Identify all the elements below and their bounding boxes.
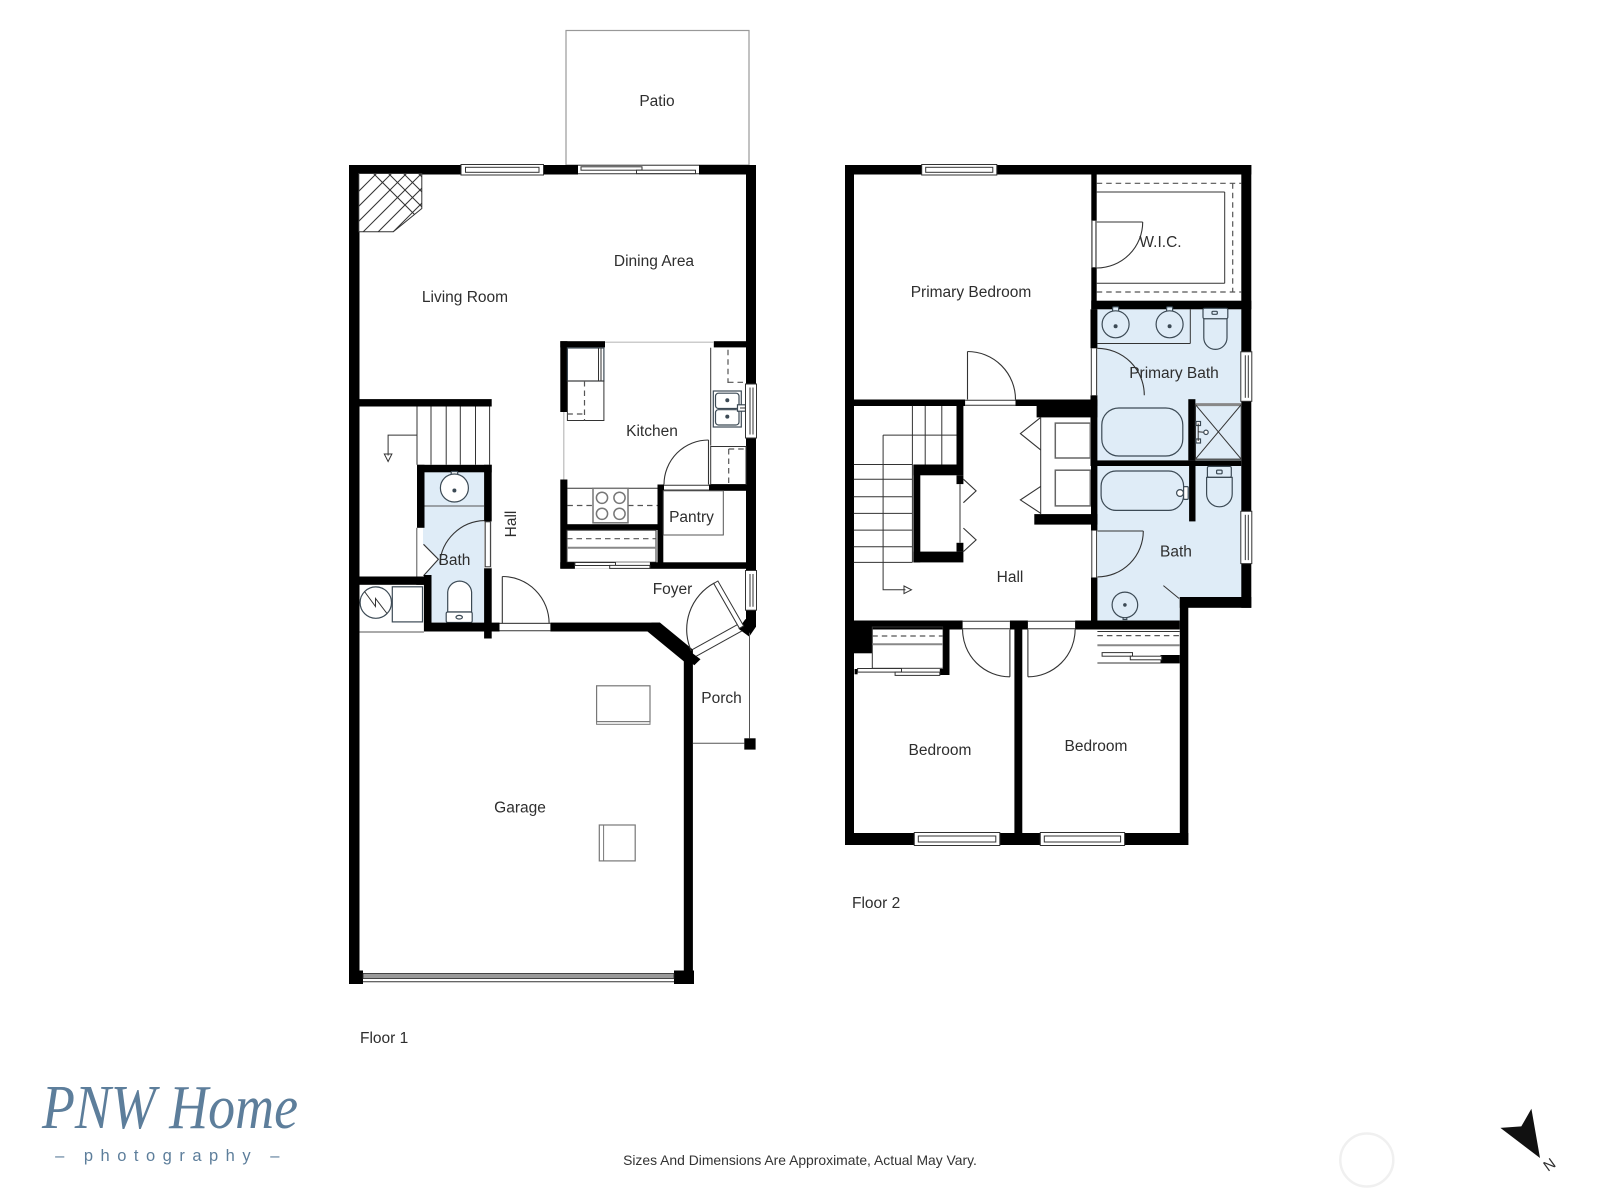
svg-text:Pantry: Pantry: [669, 509, 714, 526]
svg-text:Bath: Bath: [1160, 544, 1192, 561]
svg-text:Patio: Patio: [639, 93, 674, 110]
svg-text:Bedroom: Bedroom: [1065, 738, 1128, 755]
svg-text:Foyer: Foyer: [653, 581, 693, 598]
svg-text:Dining Area: Dining Area: [614, 253, 695, 270]
svg-text:– photography –: – photography –: [55, 1147, 287, 1165]
svg-text:W.I.C.: W.I.C.: [1139, 234, 1181, 251]
svg-text:Floor 1: Floor 1: [360, 1030, 408, 1047]
svg-text:Bedroom: Bedroom: [909, 742, 972, 759]
svg-text:Garage: Garage: [494, 800, 546, 817]
svg-text:Sizes And Dimensions Are Appro: Sizes And Dimensions Are Approximate, Ac…: [623, 1152, 977, 1168]
svg-text:Living Room: Living Room: [422, 289, 508, 306]
svg-text:Hall: Hall: [503, 511, 520, 538]
svg-text:Porch: Porch: [701, 690, 742, 707]
svg-text:Floor 2: Floor 2: [852, 895, 900, 912]
svg-text:Bath: Bath: [439, 552, 471, 569]
svg-text:PNW Home: PNW Home: [41, 1074, 298, 1142]
svg-text:Primary Bath: Primary Bath: [1129, 365, 1219, 382]
svg-text:Primary Bedroom: Primary Bedroom: [911, 284, 1032, 301]
svg-text:Kitchen: Kitchen: [626, 423, 678, 440]
svg-text:Hall: Hall: [997, 569, 1024, 586]
